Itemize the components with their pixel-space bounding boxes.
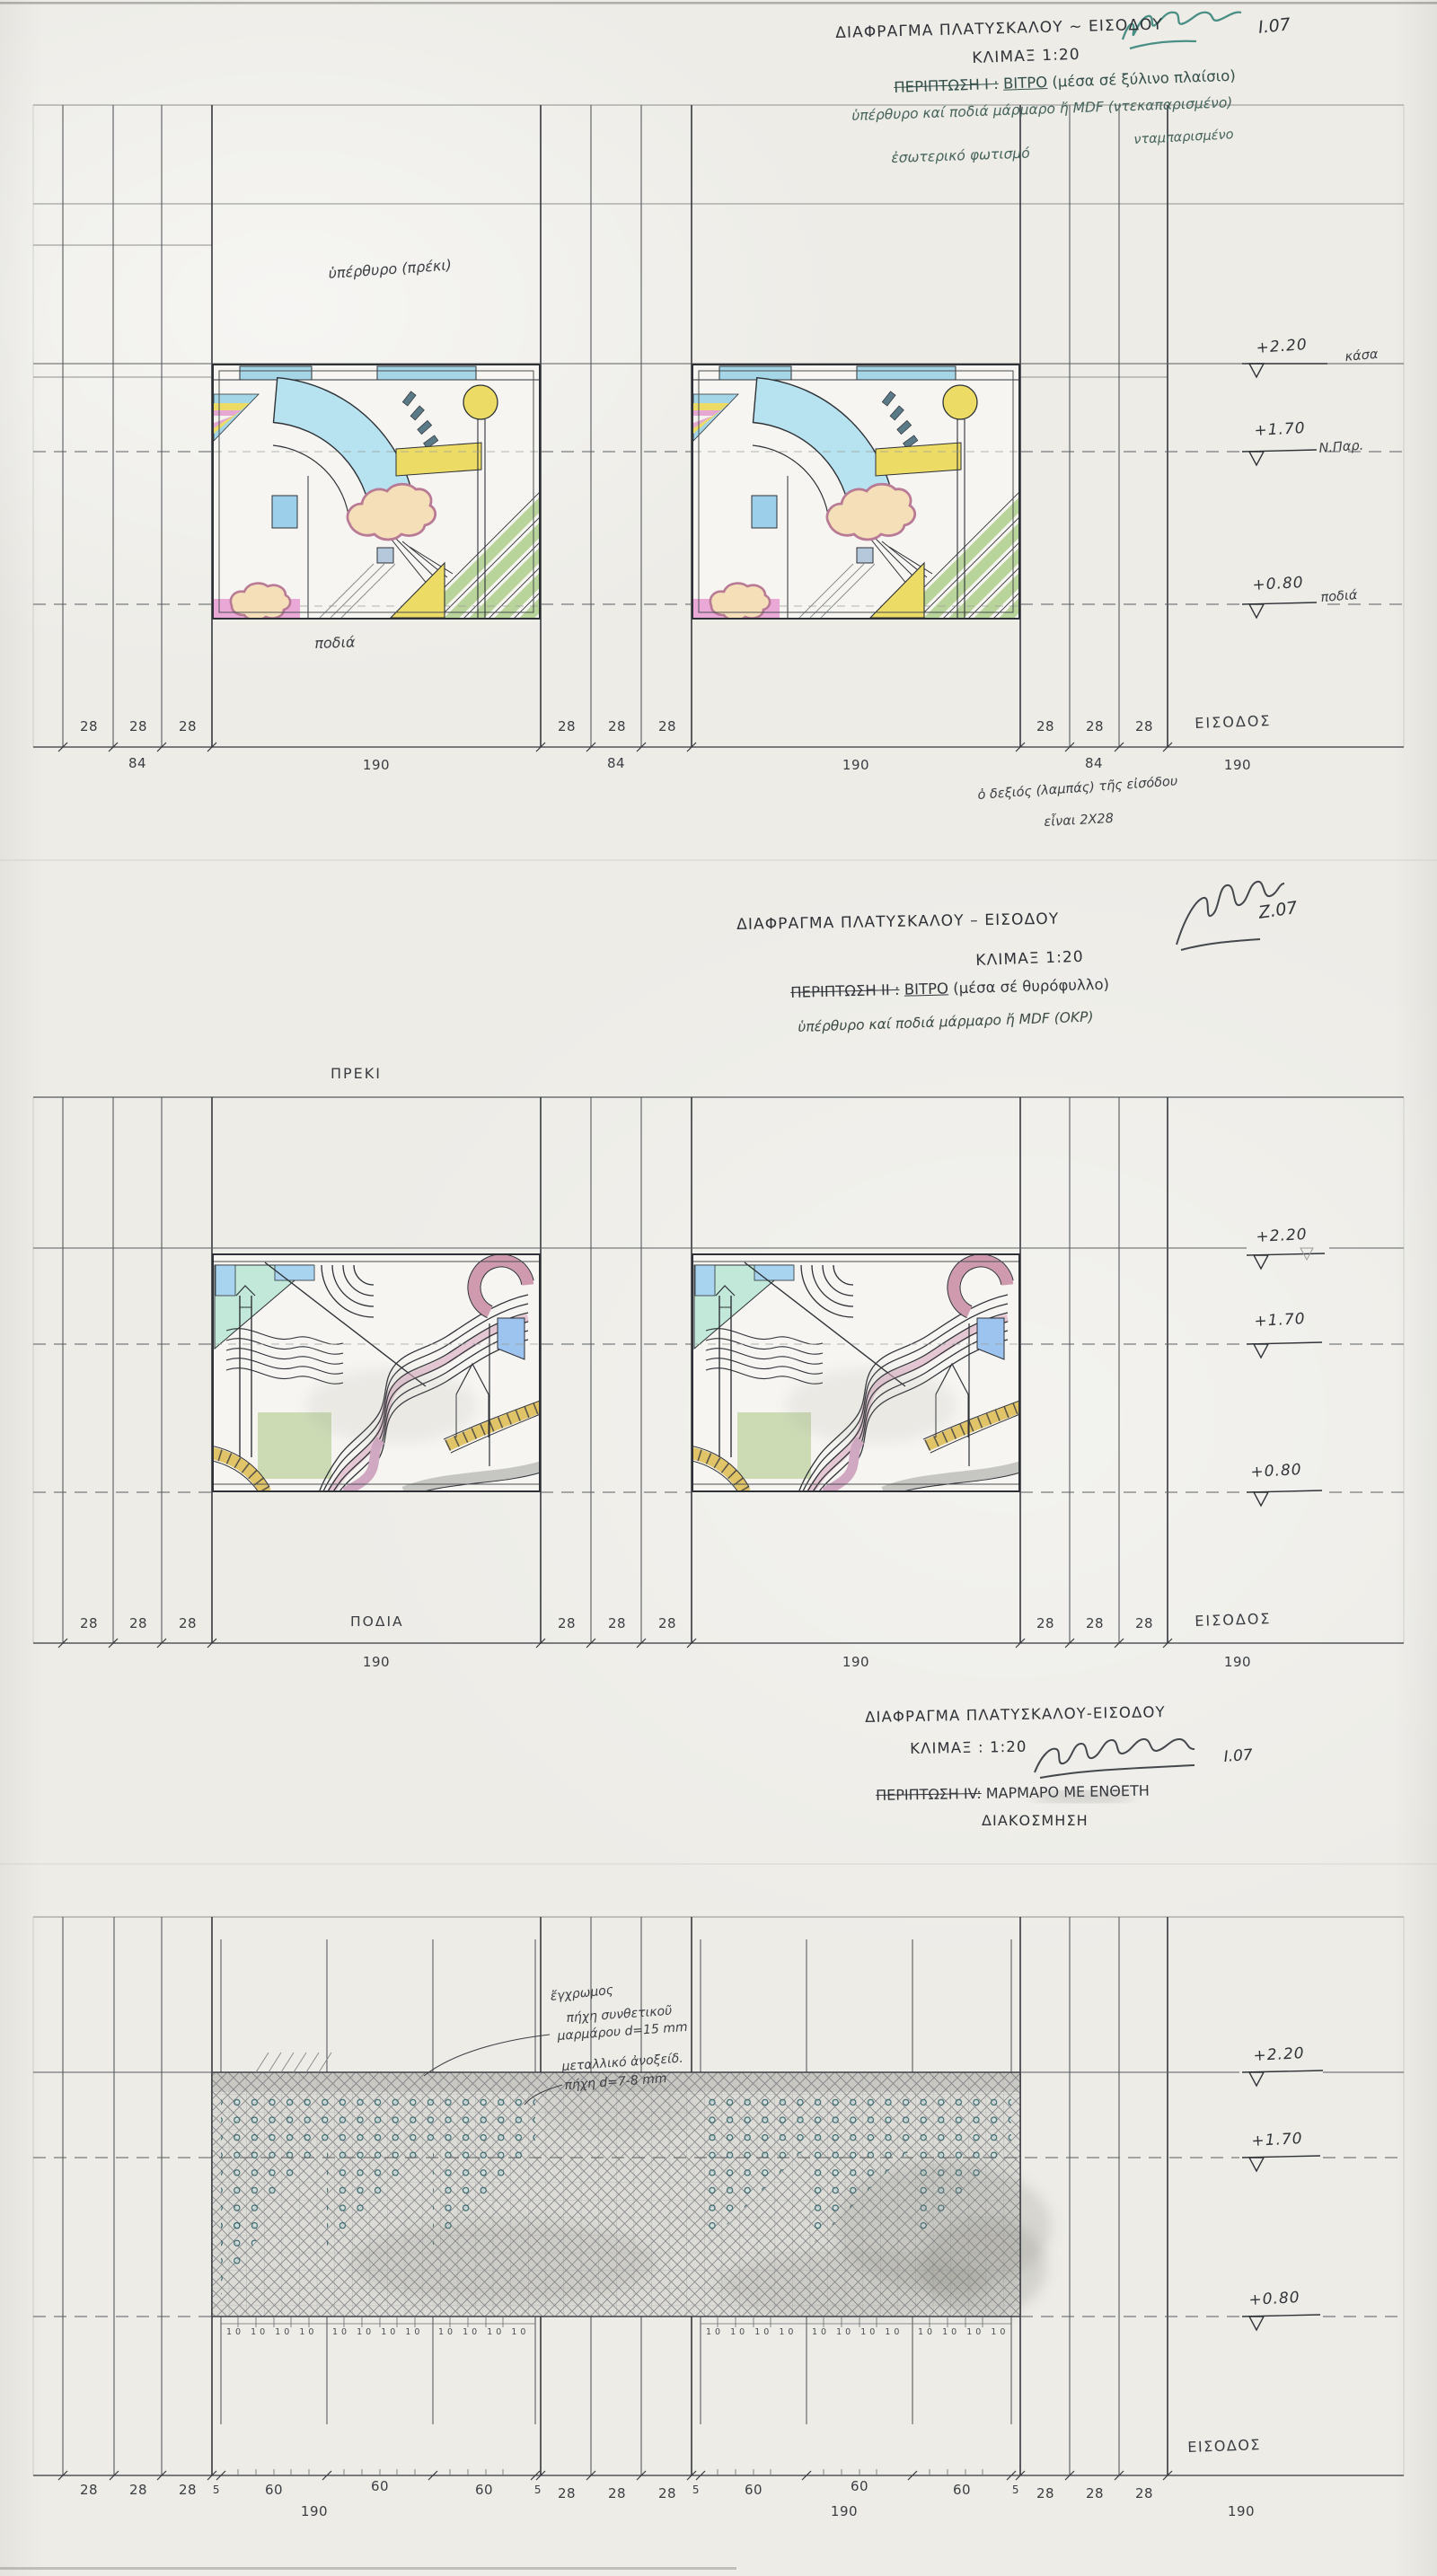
- s2-case-label: ΠΕΡΙΠΤΩΣΗ ΙΙ :: [790, 981, 900, 1001]
- drawing-section-2: [33, 882, 1404, 1648]
- s3-signature-date: Ι.07: [1223, 1746, 1253, 1766]
- s2-level-2_20: +2.20: [1256, 1226, 1308, 1246]
- drawing-section-3: [33, 1739, 1404, 2480]
- dim-190: 190: [358, 757, 394, 773]
- dim-84: 84: [598, 755, 634, 771]
- scanned-architectural-sheet: { "document": { "type": "hand-drawn arch…: [0, 0, 1437, 2576]
- s2-level-0_80: +0.80: [1250, 1461, 1302, 1481]
- s1-level-0_80-label: ποδιά: [1320, 588, 1358, 605]
- s3-case-label: ΠΕΡΙΠΤΩΣΗ ΙV:: [876, 1785, 982, 1804]
- dim-28: 28: [608, 718, 624, 734]
- dim-28: 28: [558, 718, 574, 734]
- s1-entrance-label: ΕΙΣΟΔΟΣ: [1195, 712, 1272, 732]
- s3-level-2_20: +2.20: [1253, 2044, 1305, 2065]
- dim-28: 28: [608, 1615, 624, 1631]
- s1-level-1_70: +1.70: [1254, 419, 1306, 440]
- dim-28: 28: [129, 1615, 145, 1631]
- dim-28: 28: [1086, 1615, 1102, 1631]
- dim-28: 28: [179, 1615, 195, 1631]
- s3-case-line-2: ΔΙΑΚΟΣΜΗΣΗ: [982, 1812, 1089, 1829]
- dim-190: 190: [1220, 1654, 1256, 1670]
- dim-190: 190: [826, 2503, 862, 2519]
- dim-28: 28: [658, 2485, 674, 2501]
- tick-row-10: 10 10 10 10: [706, 2327, 797, 2337]
- dim-28: 28: [1086, 2485, 1102, 2501]
- dim-60: 60: [952, 2482, 972, 2498]
- s3-level-0_80: +0.80: [1248, 2289, 1300, 2309]
- s1-scale: ΚΛΙΜΑΞ 1:20: [972, 46, 1080, 67]
- s3-level-1_70: +1.70: [1251, 2130, 1303, 2150]
- dim-60: 60: [474, 2482, 494, 2498]
- tick-row-10: 10 10 10 10: [918, 2327, 1009, 2337]
- s2-scale: ΚΛΙΜΑΞ 1:20: [975, 948, 1084, 970]
- dim-60: 60: [744, 2482, 763, 2498]
- dim-84: 84: [1076, 755, 1112, 771]
- dim-28: 28: [1086, 718, 1102, 734]
- dim-28: 28: [80, 1615, 96, 1631]
- dim-28: 28: [179, 718, 195, 734]
- drawing-linework: [0, 0, 1437, 2576]
- s3-scale: ΚΛΙΜΑΞ : 1:20: [910, 1738, 1027, 1757]
- scan-bottom-edge: [0, 2567, 736, 2570]
- dim-28: 28: [80, 718, 96, 734]
- s1-level-2_20-label: κάσα: [1344, 347, 1379, 365]
- dim-190: 190: [1220, 757, 1256, 773]
- dim-60: 60: [370, 2478, 390, 2494]
- dim-28: 28: [608, 2485, 624, 2501]
- dim-28: 28: [1135, 2485, 1151, 2501]
- s1-case-value: ΒΙΤΡΟ: [1003, 74, 1048, 92]
- scan-top-edge: [0, 2, 1437, 4]
- dim-28: 28: [1135, 1615, 1151, 1631]
- tick-row-10: 10 10 10 10: [438, 2327, 529, 2337]
- s2-sill-label: ΠΟΔΙΑ: [350, 1613, 404, 1630]
- s1-signature-date: Ι.07: [1257, 14, 1292, 38]
- dim-28: 28: [80, 2482, 96, 2498]
- dim-28: 28: [558, 2485, 574, 2501]
- dim-190: 190: [838, 757, 874, 773]
- dim-28: 28: [179, 2482, 195, 2498]
- drawing-section-1: [33, 13, 1404, 752]
- dim-190: 190: [838, 1654, 874, 1670]
- dim-5: 5: [1011, 2484, 1020, 2496]
- dim-5: 5: [533, 2484, 542, 2496]
- tick-row-10: 10 10 10 10: [226, 2327, 317, 2337]
- s3-entrance-label: ΕΙΣΟΔΟΣ: [1187, 2436, 1261, 2456]
- s2-entrance-label: ΕΙΣΟΔΟΣ: [1195, 1610, 1272, 1630]
- dim-60: 60: [850, 2478, 869, 2494]
- s1-level-0_80: +0.80: [1252, 574, 1304, 594]
- s2-level-1_70: +1.70: [1254, 1310, 1306, 1331]
- dim-28: 28: [1036, 2485, 1053, 2501]
- dim-84: 84: [119, 755, 155, 771]
- signature-scribble-3: [1035, 1739, 1195, 1778]
- dim-5: 5: [692, 2484, 701, 2496]
- dim-28: 28: [129, 718, 145, 734]
- dim-28: 28: [658, 1615, 674, 1631]
- marble-inlay-band: [212, 2072, 1051, 2319]
- dim-28: 28: [129, 2482, 145, 2498]
- tick-row-10: 10 10 10 10: [812, 2327, 903, 2337]
- tick-row-10: 10 10 10 10: [332, 2327, 423, 2337]
- dim-60: 60: [264, 2482, 284, 2498]
- s1-level-2_20: +2.20: [1256, 336, 1308, 357]
- s1-case-label: ΠΕΡΙΠΤΩΣΗ Ι :: [894, 75, 999, 96]
- dim-28: 28: [658, 718, 674, 734]
- s3-case-value: ΜΑΡΜΑΡΟ ΜΕ ΕΝΘΕΤΗ: [986, 1782, 1150, 1802]
- dim-190: 190: [1223, 2503, 1259, 2519]
- dim-190: 190: [296, 2503, 332, 2519]
- dim-28: 28: [558, 1615, 574, 1631]
- dim-5: 5: [212, 2484, 221, 2496]
- dim-28: 28: [1135, 718, 1151, 734]
- dim-28: 28: [1036, 718, 1053, 734]
- s1-sill-label: ποδιά: [314, 633, 356, 652]
- dim-190: 190: [358, 1654, 394, 1670]
- s2-case-value: ΒΙΤΡΟ: [904, 980, 949, 998]
- dim-28: 28: [1036, 1615, 1053, 1631]
- s2-lintel-label: ΠΡΕΚΙ: [331, 1065, 382, 1082]
